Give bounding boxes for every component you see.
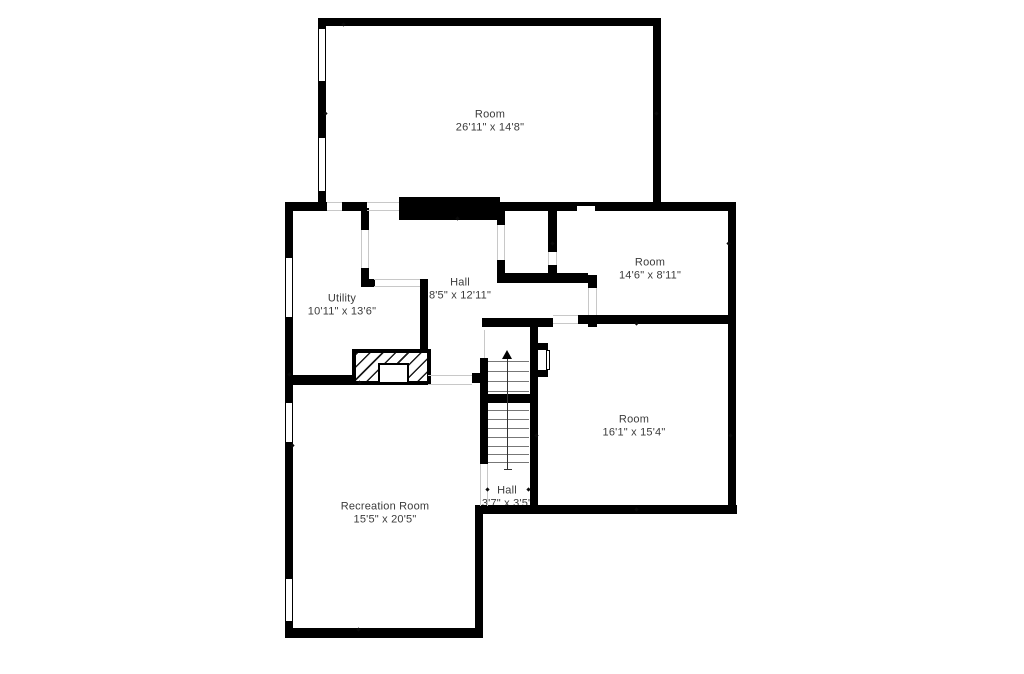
room-label-top-room: Room 26'11" x 14'8" bbox=[456, 109, 524, 134]
door-guide bbox=[374, 286, 420, 287]
dimension-tick bbox=[634, 321, 638, 325]
door-guide bbox=[487, 464, 488, 506]
wall bbox=[361, 268, 369, 287]
room-dimensions: 10'11" x 13'6" bbox=[308, 305, 376, 318]
door-guide bbox=[553, 315, 578, 316]
room-dimensions: 15'5" x 20'5" bbox=[341, 513, 430, 526]
stair-tread bbox=[488, 381, 529, 382]
wall bbox=[318, 18, 661, 26]
room-dimensions: 16'1" x 15'4" bbox=[603, 426, 666, 439]
wall bbox=[595, 202, 736, 211]
window-glyph bbox=[285, 402, 293, 443]
wall bbox=[285, 628, 483, 638]
wall bbox=[361, 208, 369, 230]
room-dimensions: 8'5" x 12'11" bbox=[429, 289, 491, 302]
dimension-tick bbox=[323, 111, 327, 115]
stair-tread bbox=[488, 361, 529, 362]
wall bbox=[475, 505, 483, 638]
wall bbox=[480, 358, 488, 464]
stair-edge-guide bbox=[484, 330, 485, 358]
room-label-hall: Hall 8'5" x 12'11" bbox=[429, 277, 491, 302]
wall bbox=[399, 197, 500, 220]
door-guide bbox=[368, 230, 369, 268]
door-guide bbox=[327, 210, 342, 211]
stair-tread bbox=[488, 410, 529, 411]
wall bbox=[497, 211, 505, 225]
door-guide bbox=[428, 384, 472, 385]
door-guide bbox=[588, 288, 589, 315]
door-guide bbox=[327, 202, 342, 203]
room-name: Hall bbox=[429, 277, 491, 290]
wall bbox=[500, 202, 577, 211]
wall bbox=[577, 202, 595, 206]
room-name: Room bbox=[619, 257, 681, 270]
wall bbox=[578, 315, 736, 324]
wall bbox=[475, 505, 737, 514]
door-guide bbox=[361, 230, 362, 268]
door-guide bbox=[367, 210, 399, 211]
stair-tread bbox=[488, 437, 529, 438]
door-guide bbox=[553, 323, 578, 324]
door-panel bbox=[546, 350, 550, 370]
room-name: Room bbox=[456, 109, 524, 122]
stair-tread bbox=[488, 391, 529, 392]
window-glyph bbox=[318, 137, 326, 192]
room-name: Hall bbox=[482, 485, 532, 498]
door-guide bbox=[596, 288, 597, 315]
wall bbox=[482, 318, 553, 327]
stair-tread bbox=[488, 419, 529, 420]
room-name: Recreation Room bbox=[341, 501, 430, 514]
window-glyph bbox=[285, 578, 293, 622]
room-label-recreation: Recreation Room 15'5" x 20'5" bbox=[341, 501, 430, 526]
wall bbox=[588, 275, 597, 288]
wall bbox=[472, 373, 480, 383]
stair-tread bbox=[488, 428, 529, 429]
wall bbox=[289, 202, 327, 211]
wall bbox=[538, 370, 548, 377]
room-label-room-ne: Room 14'6" x 8'11" bbox=[619, 257, 681, 282]
room-name: Room bbox=[603, 414, 666, 427]
stair-tread bbox=[488, 462, 529, 463]
room-dimensions: 26'11" x 14'8" bbox=[456, 121, 524, 134]
door-guide bbox=[497, 225, 498, 260]
wall bbox=[538, 343, 548, 350]
room-dimensions: 14'6" x 8'11" bbox=[619, 269, 681, 282]
stair-tread bbox=[488, 446, 529, 447]
room-label-utility: Utility 10'11" x 13'6" bbox=[308, 293, 376, 318]
room-name: Utility bbox=[308, 293, 376, 306]
door-guide bbox=[548, 252, 549, 265]
door-guide bbox=[374, 279, 420, 280]
chimney-flue bbox=[378, 363, 409, 382]
window-glyph bbox=[318, 28, 326, 82]
wall bbox=[548, 211, 557, 252]
stairs-direction-tail bbox=[504, 469, 512, 470]
room-label-room-se: Room 16'1" x 15'4" bbox=[603, 414, 666, 439]
stair-tread bbox=[488, 371, 529, 372]
wall bbox=[497, 273, 588, 283]
wall bbox=[728, 202, 736, 514]
door-guide bbox=[428, 375, 472, 376]
stair-tread bbox=[488, 454, 529, 455]
stairs-up-arrow-icon bbox=[502, 350, 512, 359]
wall bbox=[530, 327, 538, 506]
window-glyph bbox=[285, 257, 293, 318]
floorplan-canvas: Room 26'11" x 14'8" Utility 10'11" x 13'… bbox=[0, 0, 1024, 674]
door-guide bbox=[367, 202, 399, 203]
stairs-direction-line bbox=[507, 358, 508, 470]
dimension-tick bbox=[290, 443, 294, 447]
door-guide bbox=[480, 464, 481, 506]
door-guide bbox=[556, 252, 557, 265]
door-guide bbox=[504, 225, 505, 260]
